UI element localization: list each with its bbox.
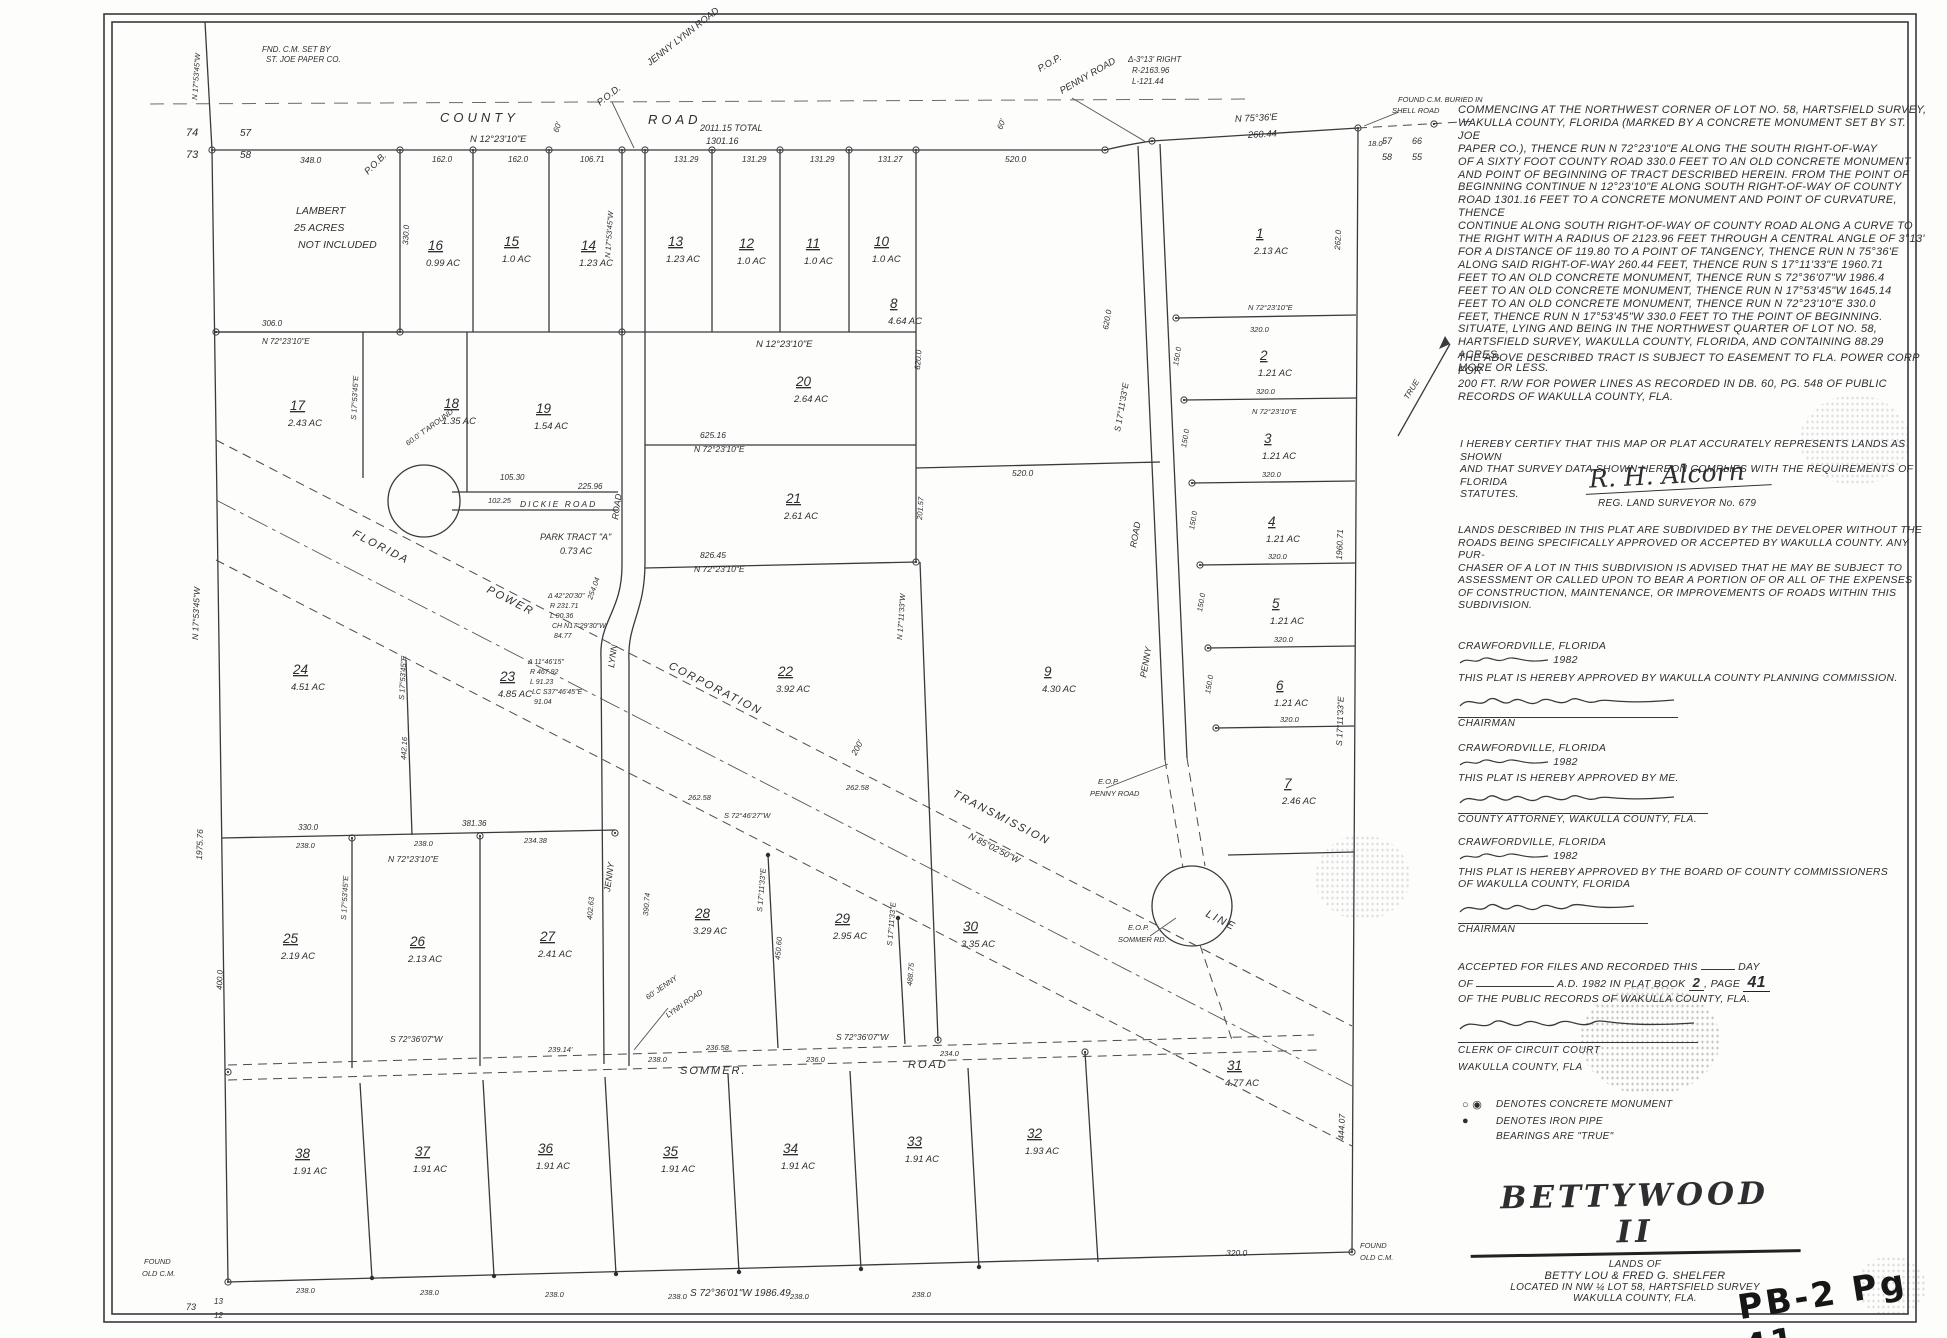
map-label: 131.29	[742, 155, 767, 164]
map-label: 0.73 AC	[560, 546, 593, 556]
map-label: JENNY	[602, 861, 616, 894]
concrete-monument-center-dot	[211, 149, 213, 151]
approval-county-commissioners: CRAWFORDVILLE, FLORIDA 1982 THIS PLAT IS…	[1458, 836, 1938, 935]
map-label: N 72°23'10"E	[694, 564, 745, 574]
map-label: LINE	[1204, 908, 1238, 933]
map-label: 60'	[551, 120, 563, 133]
map-label: FND. C.M. SET BY	[262, 45, 331, 54]
map-label: 162.0	[508, 155, 529, 164]
lot-acreage-label: 1.91 AC	[536, 1161, 570, 1172]
iron-pipe-icon	[766, 853, 770, 857]
iron-pipe-icon	[859, 1267, 863, 1271]
approval-planning-commission: CRAWFORDVILLE, FLORIDA 1982 THIS PLAT IS…	[1458, 640, 1928, 729]
map-label: 390.74	[641, 893, 652, 917]
lot-number-label: 6	[1276, 678, 1284, 693]
map-label: LC S37°46'45"E	[532, 688, 583, 696]
concrete-monument-center-dot	[1084, 1051, 1086, 1053]
map-label: S 17°53'45"E	[349, 374, 360, 420]
lot-acreage-label: 3.35 AC	[961, 939, 995, 950]
map-label: S 72°36'01"W 1986.49	[690, 1288, 791, 1299]
approval-date-line: 1982	[1458, 756, 1928, 768]
map-label: 320.0	[1280, 715, 1300, 724]
lot-acreage-label: 3.92 AC	[776, 684, 810, 695]
map-label: FLORIDA	[351, 528, 411, 567]
map-label: LYNN	[606, 643, 619, 668]
recording-line2: OF A.D. 1982 IN PLAT BOOK 2, PAGE 41	[1458, 975, 1938, 992]
tract-boundary	[205, 22, 1358, 1282]
map-label: 200'	[848, 738, 865, 758]
lot-acreage-label: 1.21 AC	[1258, 368, 1292, 379]
signature-scribble	[1458, 898, 1638, 918]
lot-number-label: 16	[428, 238, 444, 253]
concrete-monument-center-dot	[644, 149, 646, 151]
lot-acreage-label: 1.91 AC	[781, 1161, 815, 1172]
lot-number-label: 4	[1268, 514, 1276, 529]
map-label: S 72°46'27"W	[724, 811, 771, 820]
concrete-monument-center-dot	[621, 149, 623, 151]
map-label: 520.0	[1005, 154, 1027, 164]
map-label: R 467.92	[530, 669, 559, 676]
map-label: TRANSMISSION	[951, 788, 1052, 848]
map-label: 201.57	[915, 496, 926, 521]
map-label: JENNY LYNN ROAD	[644, 5, 721, 69]
map-label: 236.58	[705, 1043, 730, 1052]
map-label: 131.27	[878, 155, 903, 164]
map-label: E.O.P.	[1128, 923, 1149, 932]
map-text-labels: FND. C.M. SET BYST. JOE PAPER CO.N 17°53…	[142, 5, 1483, 1320]
developer-note: LANDS DESCRIBED IN THIS PLAT ARE SUBDIVI…	[1458, 524, 1928, 612]
map-label: 330.0	[401, 224, 411, 245]
map-label: 400.0	[215, 969, 225, 990]
plat-book-number: 2	[1689, 975, 1705, 991]
map-label: 320.0	[1226, 1248, 1248, 1258]
lot-acreage-label: 4.85 AC	[498, 689, 532, 700]
approval-signer-title: CHAIRMAN	[1458, 923, 1648, 935]
surveyor-title: REG. LAND SURVEYOR No. 679	[1598, 498, 1756, 509]
lot-acreage-label: 1.21 AC	[1274, 698, 1308, 709]
legend: ○ ◉ DENOTES CONCRETE MONUMENT ● DENOTES …	[1462, 1098, 1762, 1146]
date-scribble	[1458, 756, 1550, 768]
lot-number-label: 28	[694, 906, 711, 921]
scan-speckle	[1856, 1256, 1926, 1316]
monument-markers	[209, 121, 1437, 1285]
map-label: LYNN ROAD	[664, 987, 705, 1019]
county-road	[150, 99, 1478, 150]
concrete-monument-center-dot	[399, 149, 401, 151]
lot-acreage-label: 1.0 AC	[804, 256, 833, 267]
lot-acreage-label: 1.93 AC	[1025, 1146, 1059, 1157]
map-label: N 12°23'10"E	[470, 134, 527, 145]
map-label: 238.0	[911, 1290, 932, 1299]
map-label: 150.0	[1179, 427, 1191, 448]
map-label: S 72°36'07"W	[836, 1032, 889, 1042]
lot-acreage-label: 1.0 AC	[872, 254, 901, 265]
map-label: Δ-3°13' RIGHT	[1127, 55, 1182, 64]
concrete-monument-center-dot	[1357, 127, 1359, 129]
map-label: 91.04	[534, 699, 552, 706]
penny-road	[1138, 144, 1232, 1040]
lot-number-label: 25	[282, 931, 299, 946]
leader-lines	[612, 98, 1399, 1050]
concrete-monument-center-dot	[915, 149, 917, 151]
map-label: 25 ACRES	[293, 222, 344, 234]
concrete-monument-center-dot	[351, 837, 353, 839]
lot-acreage-label: 2.43 AC	[287, 418, 322, 429]
concrete-monument-center-dot	[621, 331, 623, 333]
lot-acreage-label: 1.91 AC	[661, 1164, 695, 1175]
recording-text: DAY	[1738, 961, 1760, 973]
lot-acreage-label: 2.61 AC	[783, 511, 818, 522]
lot-number-label: 33	[907, 1134, 923, 1149]
map-label: 2011.15 TOTAL	[699, 123, 763, 133]
date-scribble	[1458, 850, 1550, 862]
map-label: 238.0	[789, 1292, 810, 1301]
map-label: LAMBERT	[296, 205, 347, 217]
map-label: P.O.D.	[595, 83, 623, 108]
iron-pipe-icon	[614, 1272, 618, 1276]
map-label: S 17°53'45"E	[339, 874, 350, 920]
map-label: OLD C.M.	[1360, 1253, 1393, 1262]
lot-number-label: 32	[1027, 1126, 1043, 1141]
lot-number-label: 29	[834, 911, 851, 926]
map-label: CORPORATION	[667, 660, 764, 717]
approval-signer-title: COUNTY ATTORNEY, WAKULLA COUNTY, FLA.	[1458, 813, 1708, 825]
map-label: Δ 11°46'15"	[527, 658, 564, 666]
lot-number-label: 20	[795, 374, 812, 389]
map-label: 58	[240, 150, 252, 161]
dickie-road-cul-de-sac	[388, 465, 460, 537]
concrete-monument-center-dot	[1433, 123, 1435, 125]
concrete-monument-center-dot	[779, 149, 781, 151]
map-label: ROAD	[648, 112, 702, 127]
lot-number-label: 34	[783, 1141, 798, 1156]
map-label: 131.29	[674, 155, 699, 164]
concrete-monument-center-dot	[1175, 317, 1177, 319]
map-label: 320.0	[1256, 387, 1276, 396]
lot-number-label: 14	[581, 238, 596, 253]
iron-pipe-icon	[737, 1270, 741, 1274]
map-label: S 17°11'33"E	[885, 901, 898, 946]
map-label: 60'	[995, 117, 1007, 130]
map-label: 444.07	[1336, 1113, 1347, 1140]
map-label: PENNY ROAD	[1058, 56, 1118, 97]
map-label: L 90.36	[550, 613, 573, 620]
lot-number-label: 13	[668, 234, 684, 249]
map-label: FOUND	[144, 1257, 171, 1266]
jenny-lynn-road	[601, 150, 645, 1066]
lot-number-label: 9	[1044, 664, 1052, 679]
map-label: DICKIE ROAD	[520, 499, 597, 509]
approval-body: THIS PLAT IS HEREBY APPROVED BY THE BOAR…	[1458, 866, 1938, 890]
map-label: 262.0	[1333, 229, 1343, 251]
approval-date: 1982	[1553, 850, 1578, 862]
concrete-monument-center-dot	[472, 149, 474, 151]
lot-number-label: 27	[539, 929, 556, 944]
map-label: FOUND	[1360, 1241, 1387, 1250]
lot-acreage-label: 4.30 AC	[1042, 684, 1076, 695]
map-label: 254.04	[585, 576, 602, 602]
plat-title: BETTYWOOD II	[1469, 1175, 1800, 1258]
scan-speckle	[1800, 395, 1910, 485]
map-label: SOMMER RD.	[1118, 935, 1167, 944]
signature-scribble	[1458, 790, 1678, 808]
approval-signer-title: CHAIRMAN	[1458, 717, 1678, 729]
concrete-monument-center-dot	[937, 1039, 939, 1041]
map-label: L 91.23	[530, 679, 553, 686]
approval-place: CRAWFORDVILLE, FLORIDA	[1458, 640, 1928, 652]
lot-number-label: 15	[504, 234, 520, 249]
legend-label: DENOTES IRON PIPE	[1496, 1116, 1603, 1127]
date-scribble	[1458, 654, 1550, 666]
map-label: ROAD	[1128, 521, 1142, 549]
map-label: N 17°53'45"W	[190, 52, 202, 100]
lot-number-label: 35	[663, 1144, 679, 1159]
map-label: E.O.P.	[1098, 777, 1119, 786]
map-label: 520.0	[1012, 468, 1034, 478]
lot-acreage-label: 4.51 AC	[291, 682, 325, 693]
map-label: 320.0	[1274, 635, 1294, 644]
map-label: 162.0	[432, 155, 453, 164]
map-label: N 17°53'45"W	[190, 586, 202, 640]
map-label: 450.60	[773, 936, 784, 960]
map-label: TRUE	[1402, 377, 1422, 401]
map-label: 826.45	[700, 550, 726, 560]
lot-acreage-label: 2.13 AC	[407, 954, 442, 965]
recording-line1: ACCEPTED FOR FILES AND RECORDED THIS DAY	[1458, 960, 1938, 975]
lot-number-label: 1	[1256, 226, 1264, 241]
concrete-monument-icon: ○ ◉	[1462, 1098, 1496, 1111]
approval-date: 1982	[1553, 756, 1578, 768]
map-label: 73	[186, 1302, 196, 1312]
legend-item: ○ ◉ DENOTES CONCRETE MONUMENT	[1462, 1098, 1762, 1111]
lot-acreage-label: 1.91 AC	[905, 1154, 939, 1165]
map-label: SHELL ROAD	[1392, 106, 1440, 115]
lot-number-label: 17	[290, 398, 306, 413]
lot-number-label: 12	[739, 236, 755, 251]
approval-date-line: 1982	[1458, 850, 1938, 862]
map-label: ROAD	[908, 1059, 948, 1071]
legal-description: COMMENCING AT THE NORTHWEST CORNER OF LO…	[1458, 104, 1928, 375]
map-label: N 85°02'50"W	[967, 831, 1023, 866]
map-label: S 17°11'33"E	[755, 867, 768, 912]
map-label: 320.0	[1250, 325, 1270, 334]
map-label: PARK TRACT "A"	[540, 532, 612, 542]
map-label: 105.30	[500, 473, 525, 482]
map-label: 150.0	[1171, 345, 1183, 366]
map-label: 58	[1382, 152, 1392, 162]
map-label: P.O.P.	[1036, 52, 1064, 74]
lot-number-label: 21	[785, 491, 801, 506]
map-label: 60.0' T'AROUND	[404, 407, 456, 448]
concrete-monument-center-dot	[1191, 482, 1193, 484]
lot-number-label: 19	[536, 401, 552, 416]
map-label: ST. JOE PAPER CO.	[266, 55, 341, 64]
concrete-monument-center-dot	[1351, 1251, 1353, 1253]
map-label: Δ 42°20'30"	[547, 592, 585, 600]
map-label: 442.16	[399, 736, 409, 760]
legend-label: DENOTES CONCRETE MONUMENT	[1496, 1099, 1672, 1110]
lot-acreage-label: 1.91 AC	[293, 1166, 327, 1177]
legend-label: BEARINGS ARE "TRUE"	[1496, 1131, 1613, 1142]
map-label: N 17°11'33"W	[895, 593, 907, 641]
lot-acreage-label: 2.13 AC	[1253, 246, 1288, 257]
map-label: 150.0	[1203, 673, 1215, 694]
concrete-monument-center-dot	[548, 149, 550, 151]
map-label: 84.77	[554, 633, 573, 640]
lot-number-label: 31	[1227, 1058, 1242, 1073]
lot-acreage-label: 1.0 AC	[737, 256, 766, 267]
map-label: 488.75	[905, 962, 916, 986]
lot-acreage-label: 1.0 AC	[502, 254, 531, 265]
map-label: 620.0	[1101, 309, 1113, 331]
map-label: 239.14'	[547, 1045, 573, 1054]
blank-field	[1476, 977, 1554, 987]
lot-number-label: 38	[295, 1146, 311, 1161]
map-label: SOMMER.	[680, 1065, 747, 1077]
approval-date-line: 1982	[1458, 654, 1928, 666]
map-label: N 17°53'45"W	[603, 210, 615, 258]
lot-number-label: 11	[806, 236, 820, 251]
map-label: 330.0	[298, 823, 319, 832]
lot-acreage-label: 4.77 AC	[1225, 1078, 1259, 1089]
map-label: 238.0	[544, 1290, 565, 1299]
map-label: 60' JENNY	[644, 973, 680, 1002]
concrete-monument-center-dot	[215, 331, 217, 333]
map-label: 150.0	[1195, 591, 1207, 612]
map-label: 262.58	[687, 793, 712, 802]
lot-acreage-label: 1.23 AC	[579, 258, 613, 269]
map-label: 102.25	[488, 496, 512, 505]
map-label: L-121.44	[1132, 77, 1164, 86]
map-label: S 17°11'33"E	[1112, 382, 1130, 433]
recording-text: ACCEPTED FOR FILES AND RECORDED THIS	[1458, 961, 1698, 973]
iron-pipe-icon: ●	[1462, 1115, 1496, 1127]
lot-acreage-label: 1.91 AC	[413, 1164, 447, 1175]
lot-number-label: 8	[890, 296, 898, 311]
lot-number-label: 5	[1272, 596, 1280, 611]
concrete-monument-center-dot	[614, 832, 616, 834]
concrete-monument-center-dot	[711, 149, 713, 151]
lot-acreage-label: 0.99 AC	[426, 258, 460, 269]
scan-speckle	[1580, 985, 1720, 1095]
map-label: 238.0	[413, 839, 434, 848]
map-label: 13	[214, 1297, 223, 1306]
map-label: 348.0	[300, 155, 322, 165]
approval-place: CRAWFORDVILLE, FLORIDA	[1458, 836, 1938, 848]
map-label: 236.0	[805, 1055, 826, 1064]
penny-road-turnaround	[1152, 866, 1232, 946]
map-label: N 72°23'10"E	[388, 854, 439, 864]
lot-acreage-label: 2.46 AC	[1281, 796, 1316, 807]
concrete-monument-center-dot	[1104, 149, 1106, 151]
concrete-monument-center-dot	[479, 835, 481, 837]
lot-acreage-label: 2.64 AC	[793, 394, 828, 405]
map-label: 381.36	[462, 819, 487, 828]
map-label: N 72°23'10"E	[694, 444, 745, 454]
map-label: 12	[214, 1311, 223, 1320]
legend-item: ● DENOTES IRON PIPE	[1462, 1115, 1762, 1127]
map-label: 1975.76	[194, 829, 205, 860]
map-label: NOT INCLUDED	[298, 239, 377, 251]
lot-acreage-label: 1.21 AC	[1262, 451, 1296, 462]
signature-scribble	[1458, 692, 1678, 712]
map-label: 55	[1412, 152, 1423, 162]
lot-acreage-label: 2.41 AC	[537, 949, 572, 960]
map-label: 131.29	[810, 155, 835, 164]
lot-acreage-label: 1.21 AC	[1270, 616, 1304, 627]
map-label: 306.0	[262, 319, 283, 328]
map-label: N 75°36'E	[1235, 112, 1279, 125]
concrete-monument-center-dot	[1183, 399, 1185, 401]
map-label: 74	[186, 127, 198, 139]
concrete-monument-center-dot	[1207, 647, 1209, 649]
map-label: 260.44	[1247, 128, 1278, 141]
map-label: 225.96	[577, 482, 603, 491]
map-label: S 72°36'07"W	[390, 1034, 443, 1044]
concrete-monument-center-dot	[1215, 727, 1217, 729]
iron-pipe-icon	[492, 1274, 496, 1278]
map-label: PENNY ROAD	[1090, 789, 1140, 798]
plat-page-number: 41	[1743, 974, 1769, 992]
concrete-monument-center-dot	[227, 1071, 229, 1073]
concrete-monument-center-dot	[848, 149, 850, 151]
concrete-monument-center-dot	[1199, 564, 1201, 566]
map-label: 238.0	[647, 1055, 668, 1064]
map-label: 57	[1382, 136, 1393, 146]
map-label: 106.71	[580, 155, 604, 164]
map-label: CH N17°29'30"W	[552, 622, 607, 630]
approval-place: CRAWFORDVILLE, FLORIDA	[1458, 742, 1928, 754]
map-label: S 17°11'33"E	[1334, 696, 1346, 746]
map-label: 1301.16	[706, 136, 739, 146]
iron-pipe-icon	[977, 1265, 981, 1269]
concrete-monument-center-dot	[399, 331, 401, 333]
map-label: 234.0	[939, 1049, 960, 1058]
lot-acreage-label: 4.64 AC	[888, 316, 922, 327]
lot-acreage-label: 1.54 AC	[534, 421, 568, 432]
concrete-monument-center-dot	[1151, 140, 1153, 142]
map-label: 402.63	[585, 896, 596, 920]
lot-number-label: 24	[292, 662, 308, 677]
lot-number-label: 23	[499, 669, 516, 684]
map-label: N 72°23'10"E	[1252, 407, 1298, 416]
map-label: 234.38	[523, 836, 548, 845]
lot-number-label: 10	[874, 234, 890, 249]
concrete-monument-center-dot	[227, 1281, 229, 1283]
lot-acreage-label: 3.29 AC	[693, 926, 727, 937]
blank-field	[1701, 960, 1735, 970]
lot-acreage-label: 2.95 AC	[832, 931, 867, 942]
lot-number-label: 30	[963, 919, 979, 934]
map-label: PENNY	[1138, 645, 1153, 678]
map-label: N 72°23'10"E	[1248, 303, 1294, 312]
map-label: FOUND C.M. BURIED IN	[1398, 95, 1483, 104]
approval-county-attorney: CRAWFORDVILLE, FLORIDA 1982 THIS PLAT IS…	[1458, 742, 1928, 825]
lot-number-label: 26	[409, 934, 426, 949]
map-label: 150.0	[1187, 509, 1199, 530]
map-label: 1960.71	[1334, 529, 1345, 560]
map-label: R-2163.96	[1132, 66, 1170, 75]
title-sub1: LANDS OF	[1470, 1259, 1800, 1270]
map-label: N 12°23'10"E	[756, 339, 813, 350]
approval-date: 1982	[1553, 654, 1578, 666]
approval-body: THIS PLAT IS HEREBY APPROVED BY WAKULLA …	[1458, 672, 1928, 684]
map-label: 620.0	[913, 349, 923, 370]
map-label: 262.58	[845, 783, 870, 792]
map-label: R 231.71	[550, 603, 579, 610]
recording-text: OF	[1458, 978, 1473, 990]
map-label: 320.0	[1262, 470, 1282, 479]
